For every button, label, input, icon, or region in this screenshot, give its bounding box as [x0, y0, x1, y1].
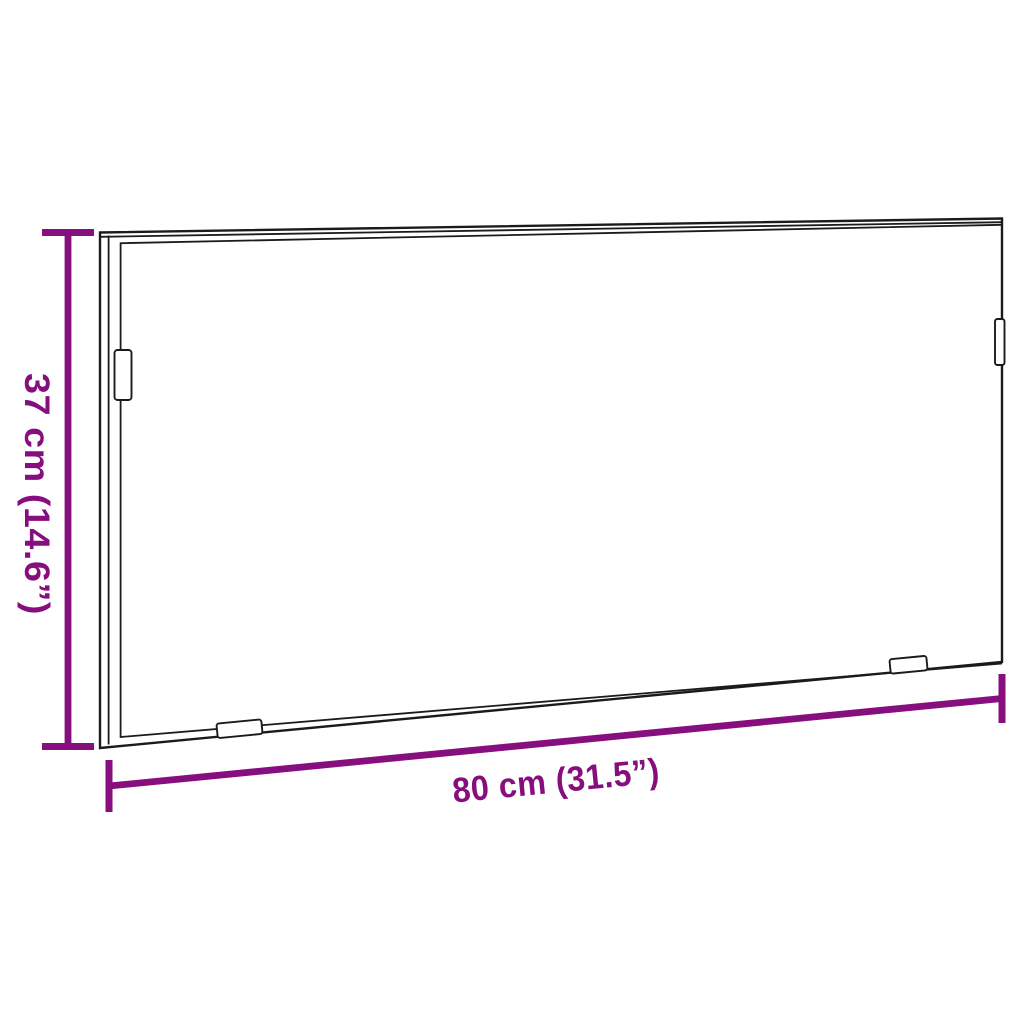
height-dimension-label: 37 cm (14.6”)	[17, 373, 56, 615]
height-dimension: 37 cm (14.6”)	[17, 233, 94, 749]
product-dimension-diagram: 37 cm (14.6”) 80 cm (31.5”)	[0, 0, 1024, 1024]
width-dimension-label: 80 cm (31.5”)	[451, 751, 662, 810]
mounting-bracket-bottom-left	[216, 719, 262, 738]
frame-outer-edge	[100, 219, 1002, 749]
diagram-canvas: 37 cm (14.6”) 80 cm (31.5”)	[0, 0, 1024, 1024]
mounting-bracket-bottom-right	[889, 656, 927, 674]
mirror-frame	[100, 219, 1005, 749]
mounting-bracket-left	[115, 350, 132, 400]
mounting-bracket-right	[995, 319, 1005, 365]
